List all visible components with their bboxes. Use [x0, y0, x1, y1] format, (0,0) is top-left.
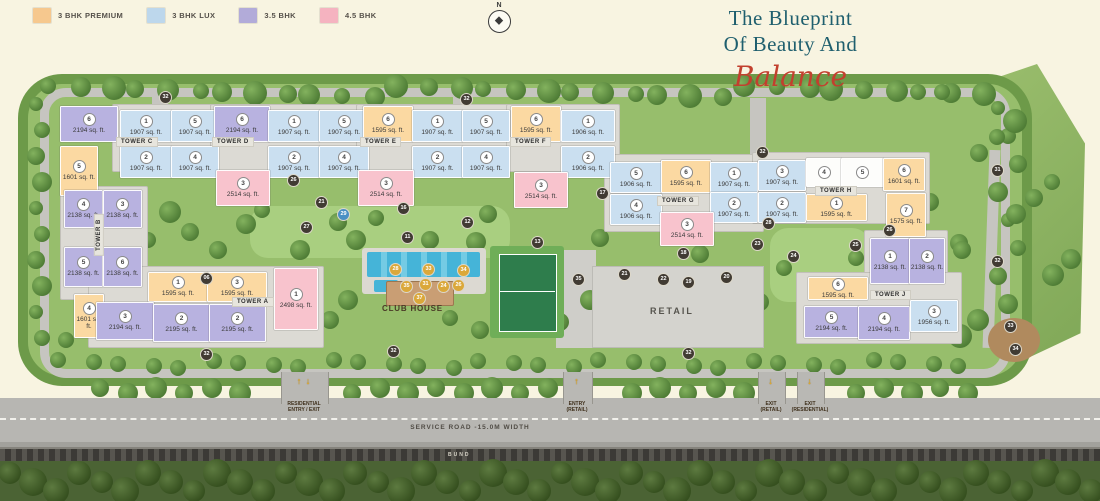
legend-swatch-bhk35	[239, 8, 257, 23]
compass-icon: ◆	[488, 10, 511, 33]
tagline-script: Balance	[668, 60, 913, 93]
masterplan-canvas: 3 BHK PREMIUM3 BHK LUX3.5 BHK4.5 BHK N ◆…	[0, 0, 1100, 501]
legend-item-bhk45: 4.5 BHK	[320, 8, 377, 23]
gate-label: ENTRY(RETAIL)	[541, 401, 613, 413]
gate-label-line2: (RETAIL)	[541, 407, 613, 413]
tagline-line2: Of Beauty And	[668, 32, 913, 58]
gate-label-line2: ENTRY / EXIT	[259, 407, 349, 413]
legend-swatch-premium	[33, 8, 51, 23]
legend-label-bhk35: 3.5 BHK	[264, 11, 296, 20]
gate-label-line2: (RESIDENTIAL)	[775, 407, 845, 413]
legend-label-lux: 3 BHK LUX	[172, 11, 215, 20]
gate-label: EXIT(RESIDENTIAL)	[775, 401, 845, 413]
gate-layer: ↑ ↓RESIDENTIALENTRY / EXIT↑ENTRY(RETAIL)…	[0, 0, 1100, 501]
tagline-line1: The Blueprint	[668, 6, 913, 32]
gate-arrow-icons: ↓	[758, 376, 784, 386]
legend-label-bhk45: 4.5 BHK	[345, 11, 377, 20]
gate-arrow-icons: ↑ ↓	[281, 376, 327, 386]
gate-arrow-icons: ↓	[797, 376, 823, 386]
legend-item-lux: 3 BHK LUX	[147, 8, 215, 23]
legend-item-premium: 3 BHK PREMIUM	[33, 8, 123, 23]
legend-swatch-bhk45	[320, 8, 338, 23]
compass: N ◆	[483, 2, 515, 33]
legend: 3 BHK PREMIUM3 BHK LUX3.5 BHK4.5 BHK	[33, 8, 377, 23]
legend-swatch-lux	[147, 8, 165, 23]
legend-item-bhk35: 3.5 BHK	[239, 8, 296, 23]
legend-label-premium: 3 BHK PREMIUM	[58, 11, 123, 20]
compass-north-label: N	[483, 2, 515, 9]
gate-arrow-icons: ↑	[563, 376, 591, 386]
gate-label: RESIDENTIALENTRY / EXIT	[259, 401, 349, 413]
tagline: The Blueprint Of Beauty And Balance	[668, 6, 913, 93]
